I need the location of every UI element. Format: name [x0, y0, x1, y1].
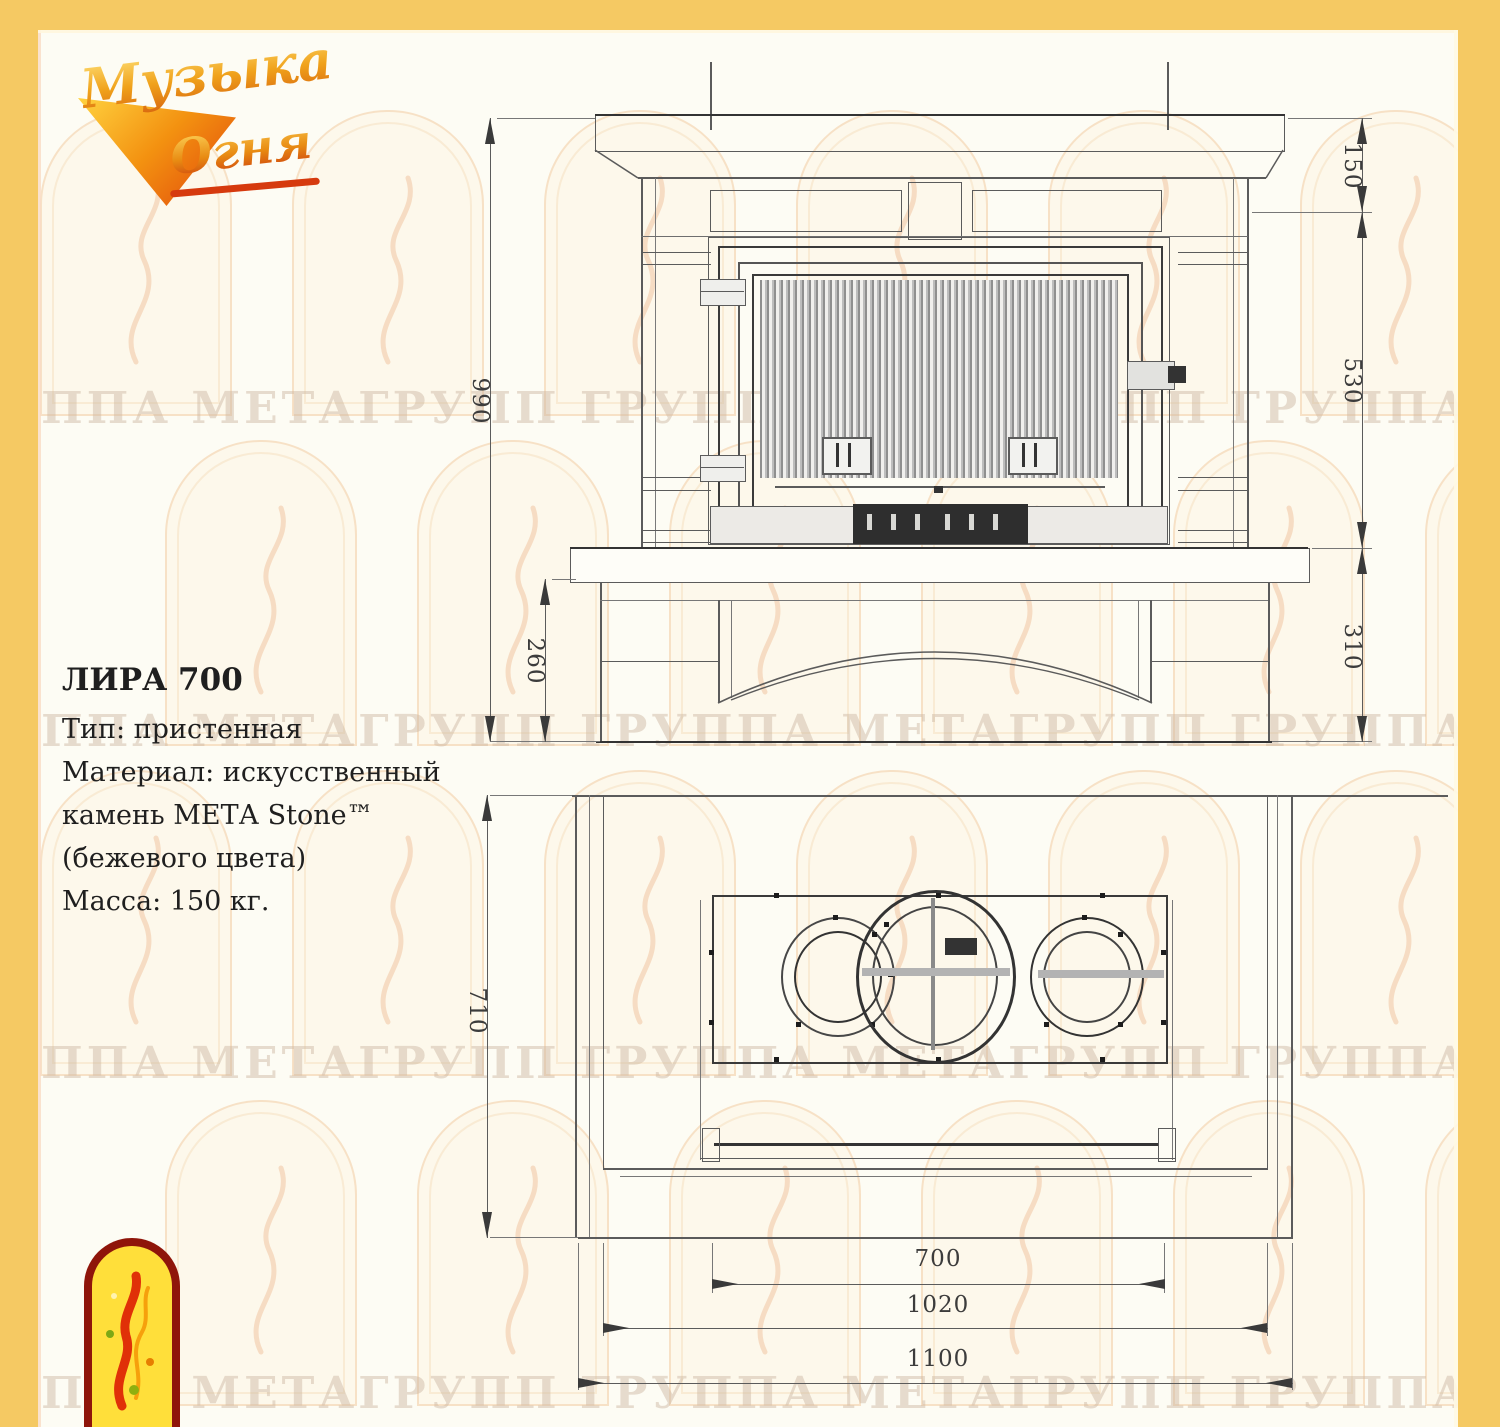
flame-figure-icon [84, 1238, 180, 1427]
spec-line: (бежевого цвета) [62, 837, 441, 880]
dim-total-height: 990 [467, 356, 493, 446]
spec-line: Тип: пристенная [62, 708, 441, 751]
product-description: ЛИРА 700 Тип: пристенная Материал: искус… [62, 662, 441, 923]
spec-sheet-page: ГРУППА МЕТАГРУПП ГРУППА МЕТАГРУПП ГРУППА… [0, 0, 1500, 1427]
dim-body-width: 1020 [893, 1292, 983, 1318]
spec-line: Материал: искусственный [62, 751, 441, 794]
spec-line: Масса: 150 кг. [62, 880, 441, 923]
page-border-top [0, 0, 1500, 30]
meta-arch-emblem [84, 1238, 180, 1427]
spec-line: камень МЕТА Stone™ [62, 794, 441, 837]
dim-firebox-height: 530 [1339, 336, 1365, 426]
page-border-left [0, 0, 38, 1427]
dim-total-width: 1100 [893, 1346, 983, 1372]
product-title: ЛИРА 700 [62, 662, 441, 698]
dim-top-band: 150 [1339, 121, 1365, 211]
brand-logo: Музыка Огня [52, 36, 342, 226]
page-border-right [1458, 0, 1500, 1427]
dim-hearth-to-floor: 310 [1339, 602, 1365, 692]
dim-firebox-width: 700 [893, 1246, 983, 1272]
dim-depth: 710 [464, 966, 490, 1056]
brand-word-1: Музыка [77, 27, 336, 121]
dim-base-height: 260 [522, 616, 548, 706]
